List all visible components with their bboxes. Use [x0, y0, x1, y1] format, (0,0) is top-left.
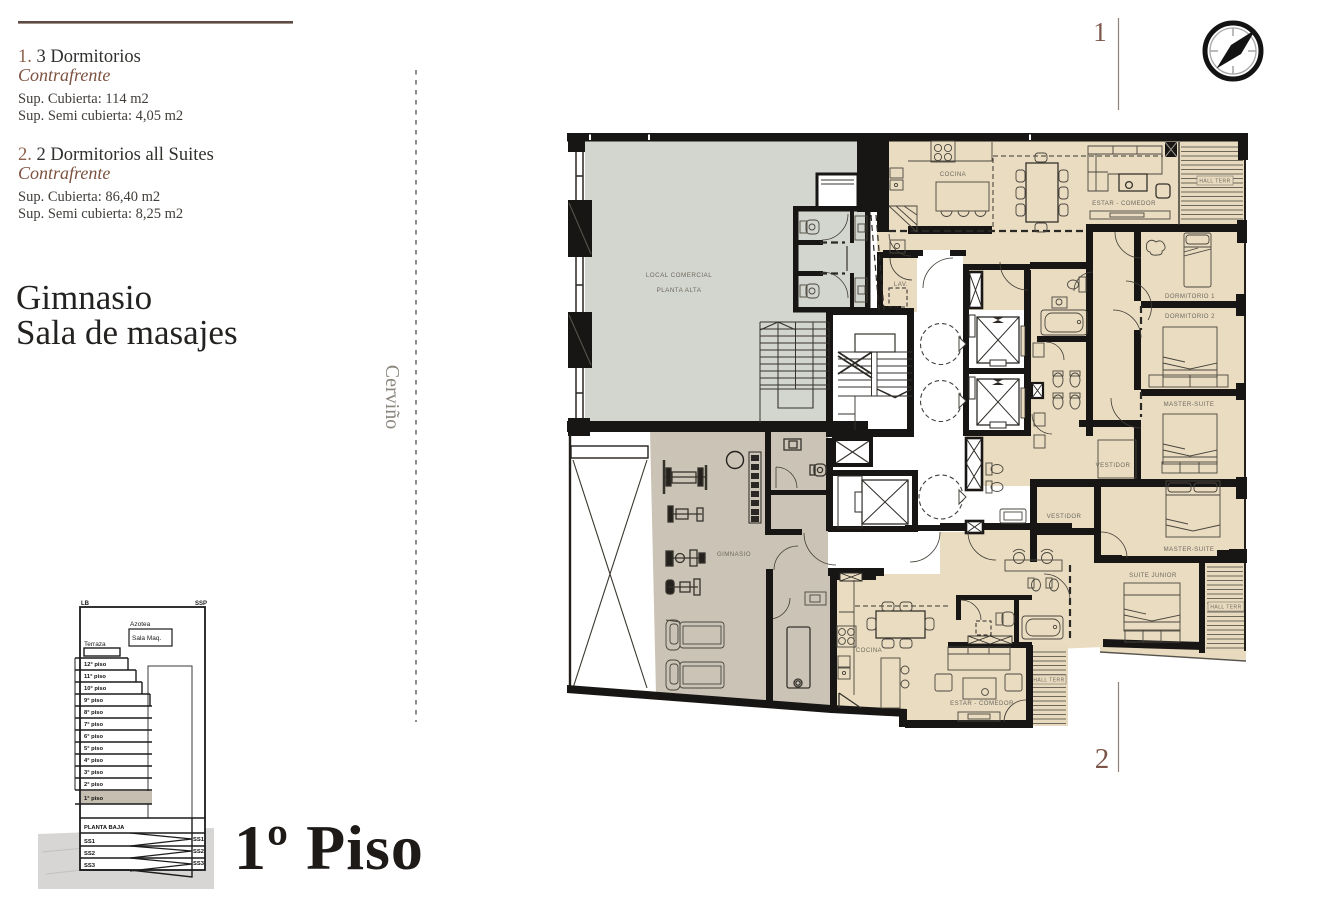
svg-text:6° piso: 6° piso — [84, 734, 104, 740]
svg-text:HALL TERR: HALL TERR — [1033, 678, 1064, 684]
svg-text:DORMITORIO 1: DORMITORIO 1 — [1165, 293, 1215, 300]
svg-text:MASTER-SUITE: MASTER-SUITE — [1164, 401, 1215, 408]
svg-text:VESTIDOR: VESTIDOR — [1047, 513, 1082, 520]
svg-text:Sup. Cubierta: 86,40 m2: Sup. Cubierta: 86,40 m2 — [18, 189, 160, 205]
svg-text:Cerviño: Cerviño — [381, 365, 403, 429]
svg-text:11° piso: 11° piso — [84, 674, 106, 680]
svg-text:SS1: SS1 — [193, 837, 205, 843]
svg-text:10° piso: 10° piso — [84, 686, 107, 692]
svg-text:PLANTA ALTA: PLANTA ALTA — [657, 287, 702, 294]
svg-text:LAV.: LAV. — [894, 281, 908, 288]
svg-text:Contrafrente: Contrafrente — [18, 65, 110, 85]
svg-text:HALL TERR: HALL TERR — [1210, 605, 1241, 611]
svg-text:SSP: SSP — [195, 601, 207, 607]
svg-text:PLANTA BAJA: PLANTA BAJA — [84, 825, 125, 831]
svg-text:HALL TERR: HALL TERR — [1199, 179, 1230, 185]
svg-text:DORMITORIO 2: DORMITORIO 2 — [1165, 313, 1215, 320]
svg-text:Azotea: Azotea — [130, 621, 151, 628]
svg-text:COCINA: COCINA — [940, 171, 967, 178]
svg-text:Gimnasio: Gimnasio — [16, 278, 152, 317]
svg-text:12° piso: 12° piso — [84, 662, 107, 668]
svg-text:SS2: SS2 — [193, 849, 204, 855]
svg-text:7° piso: 7° piso — [84, 722, 104, 728]
svg-text:4° piso: 4° piso — [84, 758, 104, 764]
svg-text:SS1: SS1 — [84, 839, 96, 845]
svg-text:Sup. Semi cubierta: 8,25 m2: Sup. Semi cubierta: 8,25 m2 — [18, 206, 183, 222]
svg-text:MASTER-SUITE: MASTER-SUITE — [1164, 546, 1215, 553]
svg-text:Sup. Cubierta: 114 m2: Sup. Cubierta: 114 m2 — [18, 91, 149, 107]
svg-text:LB: LB — [81, 601, 90, 607]
svg-text:Sup. Semi cubierta: 4,05 m2: Sup. Semi cubierta: 4,05 m2 — [18, 108, 183, 124]
svg-text:9° piso: 9° piso — [84, 698, 104, 704]
svg-text:1º Piso: 1º Piso — [234, 812, 424, 883]
svg-text:2: 2 — [1095, 743, 1110, 775]
svg-text:VESTIDOR: VESTIDOR — [1096, 462, 1131, 469]
svg-text:2° piso: 2° piso — [84, 782, 104, 788]
svg-text:SS3: SS3 — [84, 863, 96, 869]
svg-text:COCINA: COCINA — [856, 647, 883, 654]
svg-text:ESTAR - COMEDOR: ESTAR - COMEDOR — [950, 700, 1014, 707]
svg-text:Contrafrente: Contrafrente — [18, 163, 110, 183]
svg-text:8° piso: 8° piso — [84, 710, 104, 716]
svg-text:3° piso: 3° piso — [84, 770, 104, 776]
svg-text:SS3: SS3 — [193, 861, 205, 867]
svg-text:Sala de masajes: Sala de masajes — [16, 313, 238, 352]
svg-text:1. 3 Dormitorios: 1. 3 Dormitorios — [18, 47, 141, 67]
svg-text:ESTAR - COMEDOR: ESTAR - COMEDOR — [1092, 200, 1156, 207]
svg-text:LOCAL COMERCIAL: LOCAL COMERCIAL — [646, 272, 712, 279]
svg-text:2. 2 Dormitorios all Suites: 2. 2 Dormitorios all Suites — [18, 145, 214, 165]
svg-text:1° piso: 1° piso — [84, 796, 104, 802]
svg-text:SS2: SS2 — [84, 851, 95, 857]
svg-text:5° piso: 5° piso — [84, 746, 104, 752]
svg-text:Sala Maq.: Sala Maq. — [132, 635, 161, 642]
svg-text:1: 1 — [1093, 17, 1107, 47]
svg-text:Terraza: Terraza — [84, 641, 106, 648]
svg-text:SUITE JUNIOR: SUITE JUNIOR — [1129, 572, 1177, 579]
svg-text:GIMNASIO: GIMNASIO — [717, 551, 751, 558]
